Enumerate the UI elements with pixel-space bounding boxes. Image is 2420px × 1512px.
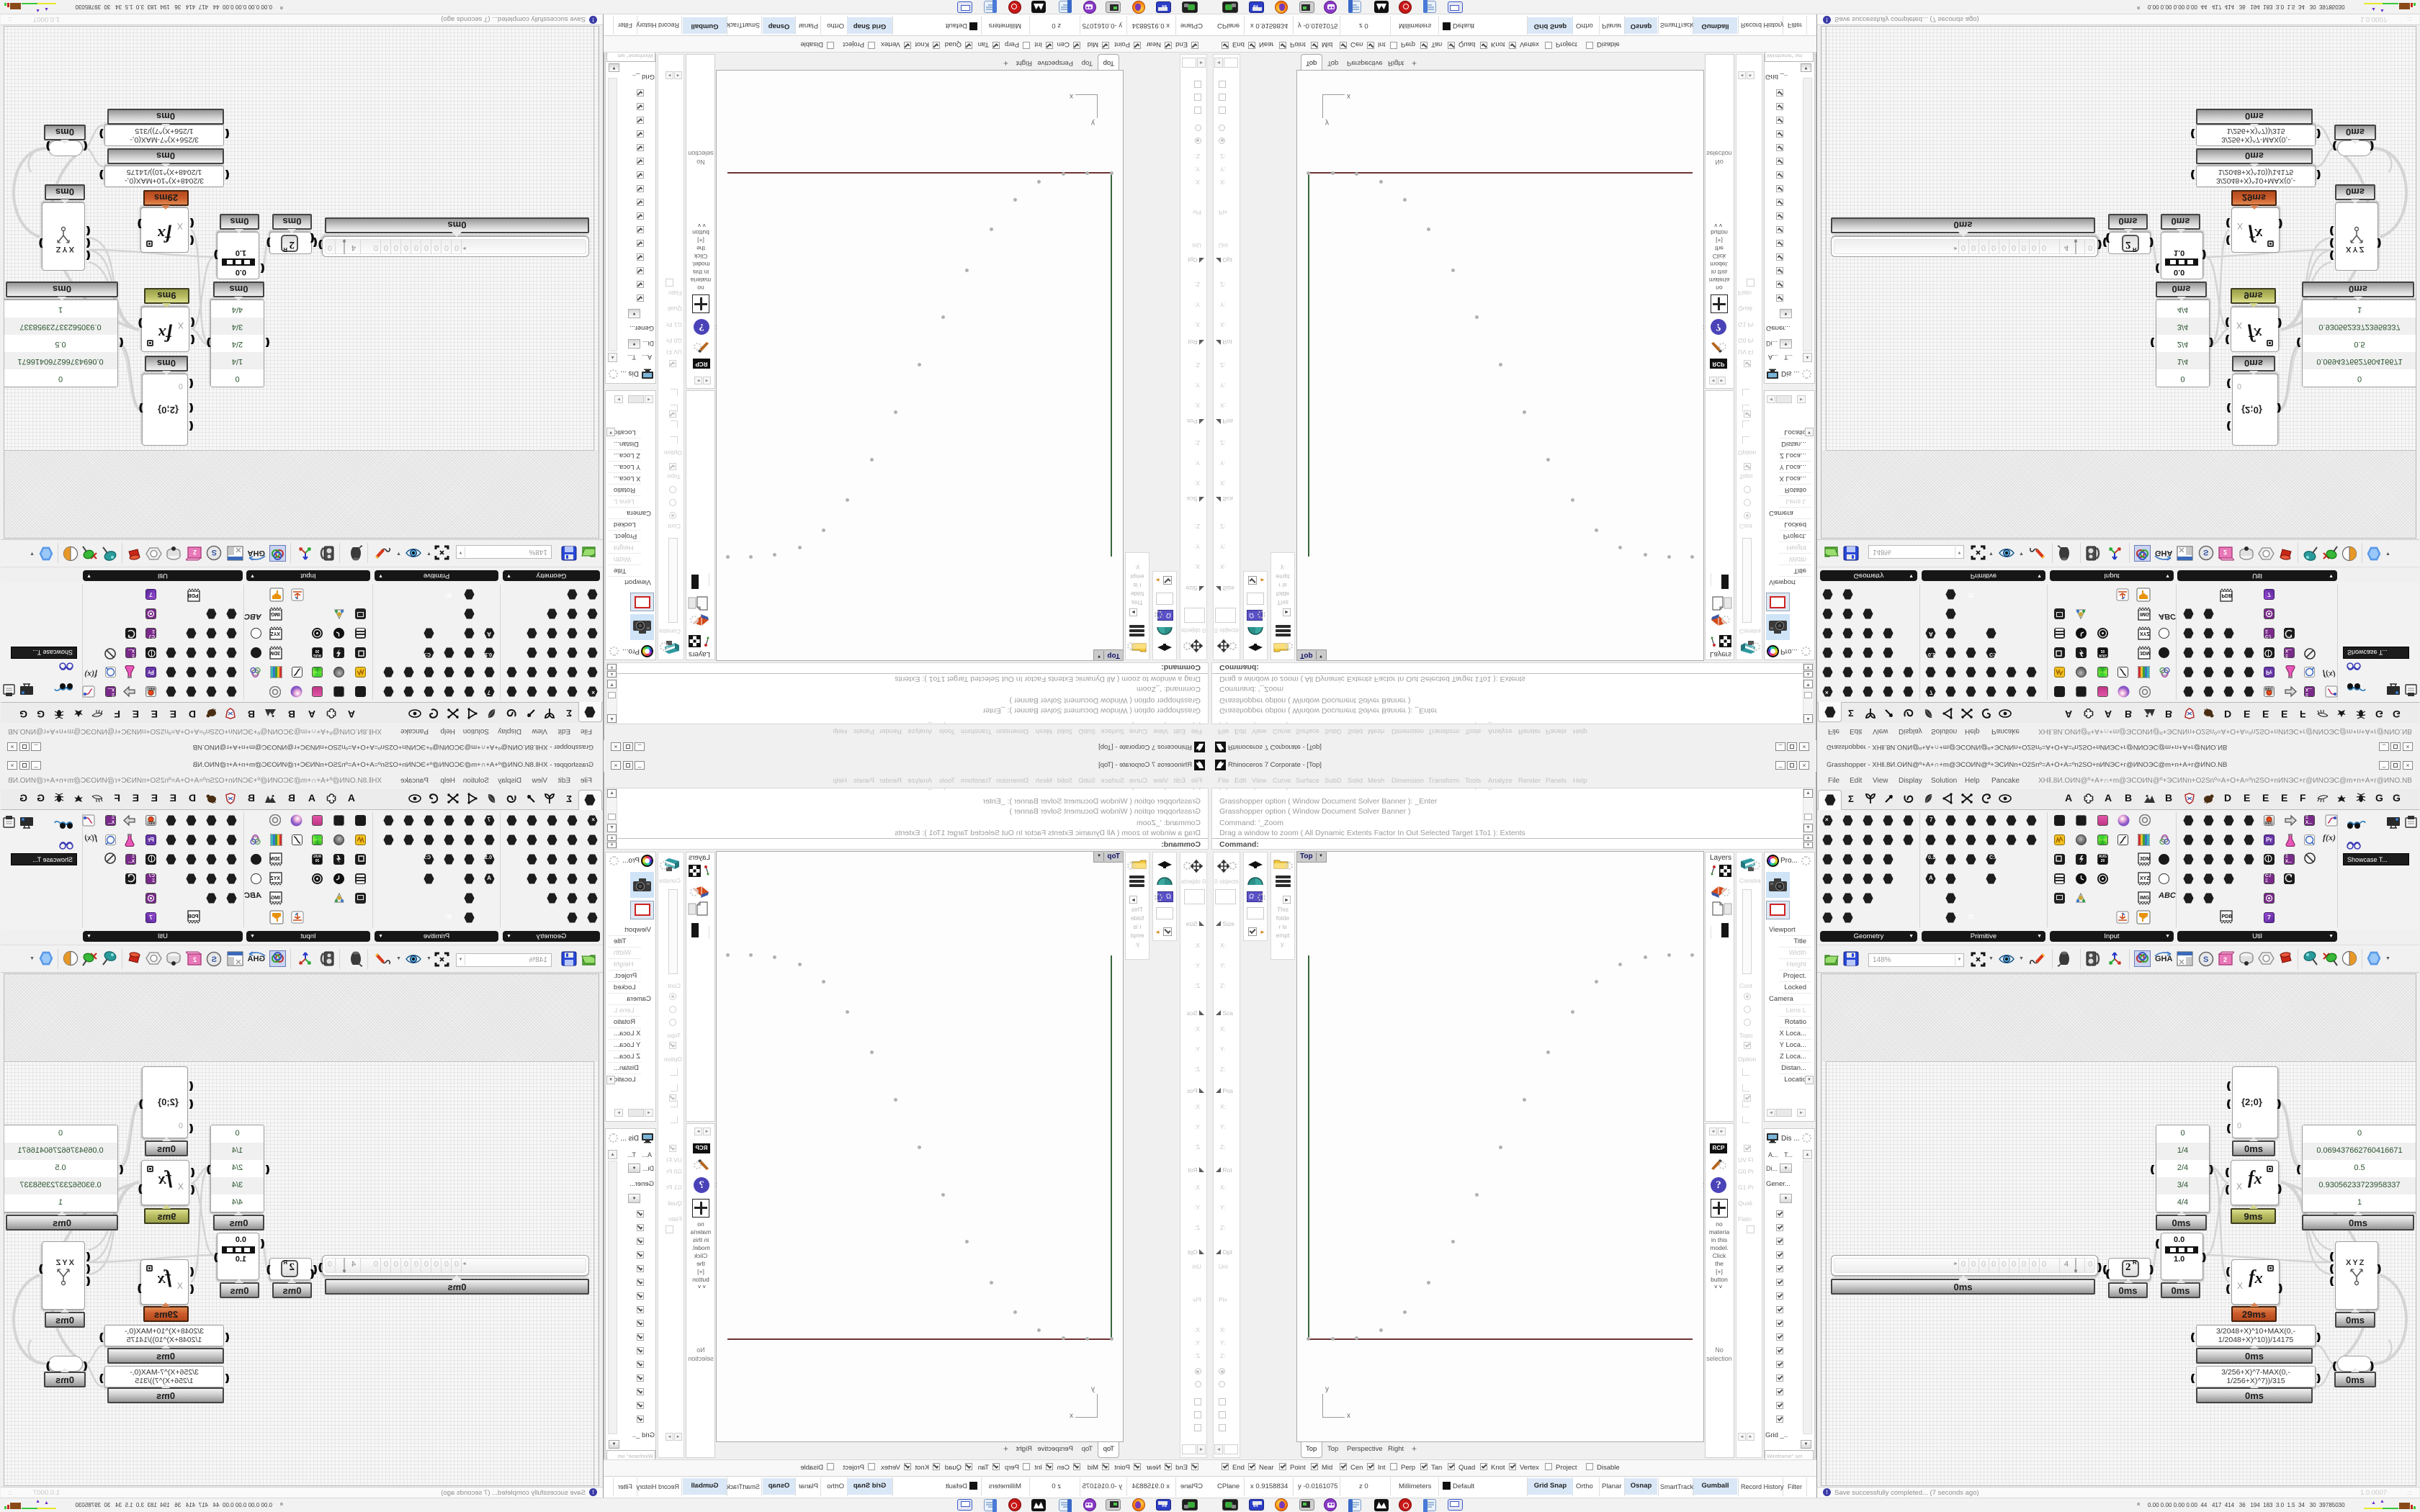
- svg-text:XYZ: XYZ: [270, 876, 280, 881]
- svg-text:XYZ: XYZ: [2140, 631, 2150, 636]
- svg-text:PDB: PDB: [2222, 914, 2233, 919]
- svg-text:S: S: [212, 548, 217, 557]
- svg-text:XYZ: XYZ: [270, 631, 280, 636]
- svg-text:S: S: [212, 955, 217, 964]
- svg-text:S: S: [2203, 548, 2208, 557]
- svg-text:IMG: IMG: [270, 611, 280, 616]
- svg-text:3DM: 3DM: [269, 650, 280, 655]
- svg-text:S: S: [2203, 955, 2208, 964]
- svg-text:2: 2: [193, 549, 197, 556]
- svg-text:2: 2: [2223, 549, 2227, 556]
- svg-text:PDB: PDB: [2222, 593, 2233, 598]
- svg-text:3DM: 3DM: [2140, 857, 2151, 862]
- svg-text:2: 2: [2223, 956, 2227, 963]
- svg-text:XYZ: XYZ: [2140, 876, 2150, 881]
- svg-text:PDB: PDB: [188, 914, 199, 919]
- svg-text:REC: REC: [2265, 822, 2273, 825]
- svg-text:REC: REC: [2265, 687, 2273, 690]
- svg-text:3DM: 3DM: [269, 857, 280, 862]
- svg-text:IMG: IMG: [2140, 896, 2150, 901]
- svg-text:3DM: 3DM: [2140, 650, 2151, 655]
- svg-text:REC: REC: [147, 822, 155, 825]
- svg-text:IMG: IMG: [2140, 611, 2150, 616]
- svg-text:REC: REC: [147, 687, 155, 690]
- svg-text:2: 2: [193, 956, 197, 963]
- svg-text:PDB: PDB: [188, 593, 199, 598]
- svg-text:IMG: IMG: [270, 896, 280, 901]
